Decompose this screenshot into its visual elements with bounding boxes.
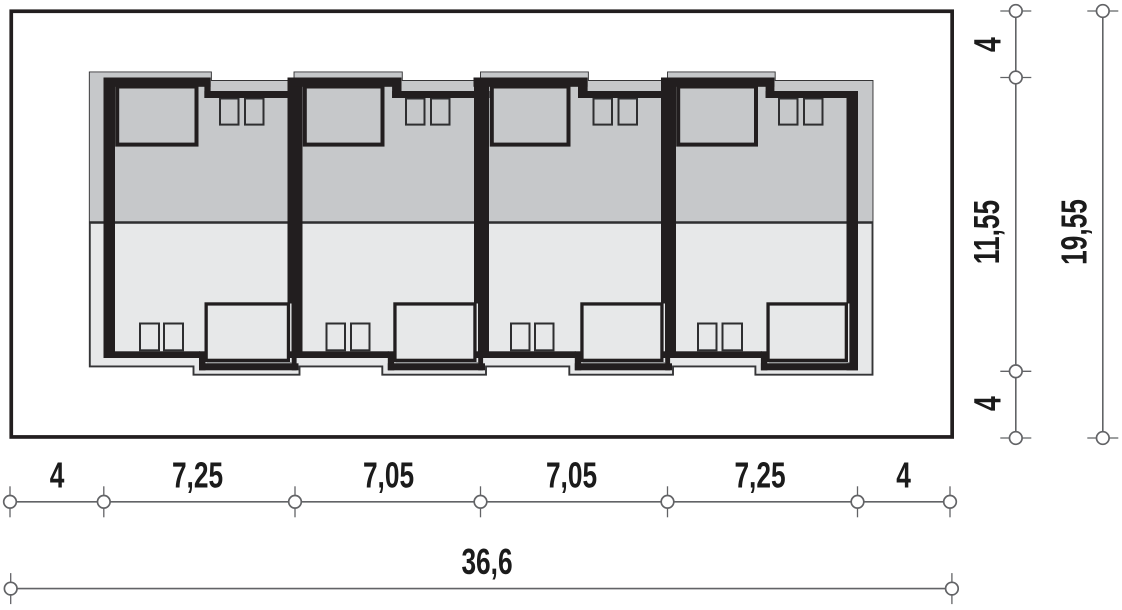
svg-text:36,6: 36,6: [461, 541, 512, 582]
svg-text:11,55: 11,55: [966, 200, 1007, 264]
svg-text:4: 4: [50, 454, 65, 495]
svg-text:19,55: 19,55: [1053, 199, 1094, 265]
svg-text:4: 4: [896, 454, 911, 495]
svg-text:7,25: 7,25: [734, 454, 785, 495]
svg-text:4: 4: [966, 396, 1009, 411]
svg-text:7,25: 7,25: [172, 454, 223, 495]
svg-text:7,05: 7,05: [546, 454, 597, 495]
svg-text:4: 4: [966, 37, 1009, 52]
svg-text:7,05: 7,05: [363, 454, 414, 495]
